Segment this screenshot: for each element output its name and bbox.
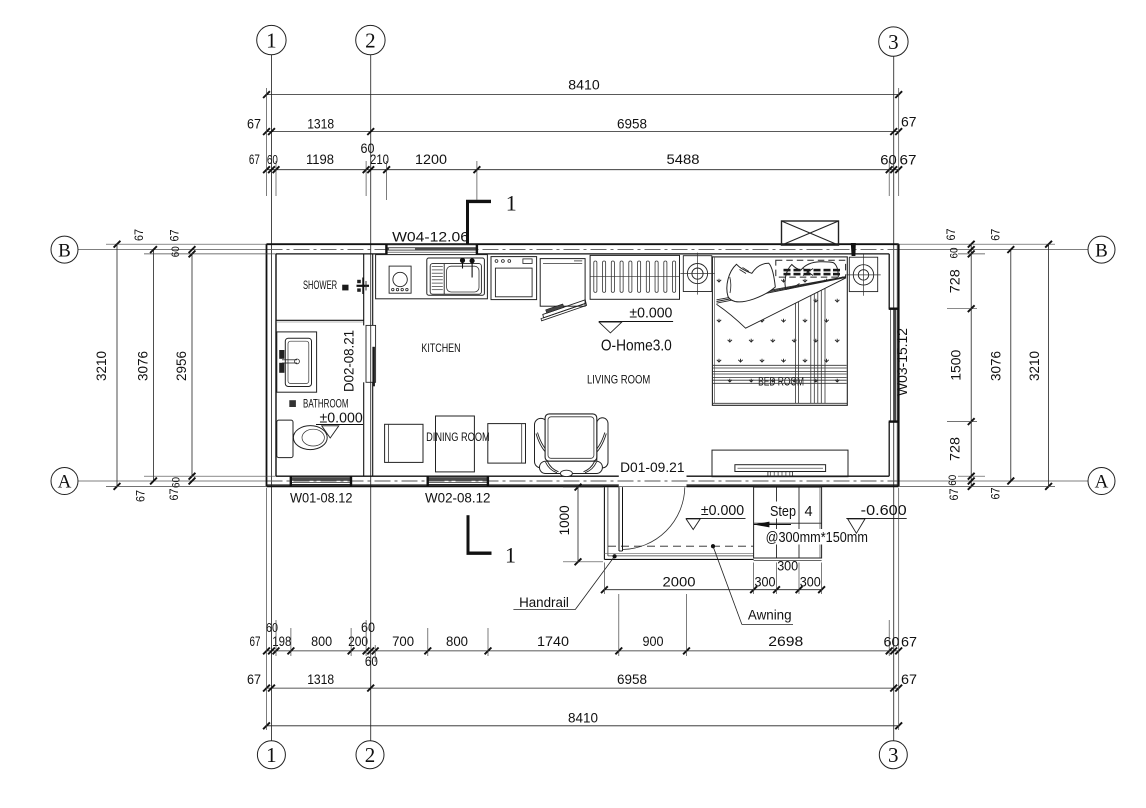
svg-text:Handrail: Handrail [519, 595, 569, 610]
svg-text:D02-08.21: D02-08.21 [342, 330, 357, 392]
svg-text:67: 67 [901, 672, 917, 687]
svg-text:67: 67 [989, 229, 1003, 241]
svg-text:3: 3 [888, 743, 899, 767]
svg-text:3076: 3076 [136, 351, 151, 381]
svg-text:3076: 3076 [989, 351, 1004, 381]
svg-text:B: B [1095, 240, 1108, 261]
svg-text:-0.600: -0.600 [861, 503, 907, 519]
svg-text:4: 4 [805, 504, 813, 520]
svg-text:2: 2 [365, 743, 376, 767]
svg-text:67: 67 [901, 634, 917, 649]
svg-text:B: B [58, 240, 71, 261]
svg-text:67: 67 [132, 229, 146, 241]
svg-text:1000: 1000 [557, 505, 572, 535]
svg-text:1: 1 [266, 28, 277, 52]
svg-text:LIVING ROOM: LIVING ROOM [587, 372, 650, 386]
svg-text:60: 60 [880, 152, 897, 167]
svg-text:198: 198 [272, 634, 291, 649]
svg-text:KITCHEN: KITCHEN [421, 341, 460, 355]
svg-text:67: 67 [247, 672, 261, 687]
svg-text:Awning: Awning [748, 608, 792, 623]
svg-text:1740: 1740 [537, 634, 569, 649]
svg-text:3: 3 [888, 30, 899, 54]
svg-text:60: 60 [947, 475, 959, 486]
svg-text:60: 60 [361, 620, 375, 635]
svg-text:210: 210 [370, 152, 389, 167]
svg-text:BED ROOM: BED ROOM [758, 375, 804, 389]
svg-text:A: A [1095, 472, 1109, 493]
svg-text:W02-08.12: W02-08.12 [425, 490, 491, 505]
svg-text:A: A [58, 472, 72, 493]
svg-text:±0.000: ±0.000 [701, 503, 744, 519]
svg-text:6958: 6958 [617, 672, 647, 687]
svg-text:W01-08.12: W01-08.12 [290, 490, 353, 505]
svg-text:60: 60 [365, 654, 378, 669]
svg-text:D01-09.21: D01-09.21 [620, 460, 684, 475]
svg-text:67: 67 [249, 152, 260, 167]
svg-text:67: 67 [989, 487, 1003, 499]
svg-text:1: 1 [266, 743, 277, 767]
svg-text:67: 67 [944, 228, 958, 240]
svg-text:6958: 6958 [617, 116, 647, 131]
svg-text:1198: 1198 [306, 152, 334, 167]
svg-text:5488: 5488 [667, 152, 700, 167]
svg-text:67: 67 [947, 488, 961, 500]
svg-text:60: 60 [949, 248, 961, 259]
svg-text:67: 67 [901, 115, 917, 130]
svg-text:8410: 8410 [568, 711, 598, 726]
svg-text:2000: 2000 [663, 574, 696, 589]
svg-text:67: 67 [134, 490, 148, 502]
svg-text:1: 1 [505, 543, 516, 568]
svg-text:@300mm*150mm: @300mm*150mm [766, 530, 868, 546]
svg-text:67: 67 [250, 634, 261, 649]
svg-text:W04-12.06: W04-12.06 [392, 229, 469, 244]
svg-text:900: 900 [643, 634, 664, 649]
svg-text:67: 67 [167, 488, 181, 500]
svg-text:60: 60 [884, 634, 900, 649]
svg-text:±0.000: ±0.000 [629, 306, 672, 322]
svg-text:300: 300 [755, 574, 776, 589]
svg-text:Step: Step [770, 504, 796, 520]
svg-text:8410: 8410 [568, 77, 599, 92]
svg-text:2: 2 [365, 28, 376, 52]
svg-text:1200: 1200 [415, 152, 447, 167]
svg-text:3210: 3210 [1027, 351, 1042, 381]
svg-text:3210: 3210 [94, 351, 109, 381]
svg-text:728: 728 [948, 437, 963, 461]
svg-text:800: 800 [446, 634, 468, 649]
svg-text:1318: 1318 [307, 116, 334, 131]
svg-text:67: 67 [168, 229, 182, 241]
svg-text:67: 67 [900, 152, 917, 167]
svg-text:2698: 2698 [768, 634, 803, 649]
svg-text:1: 1 [506, 191, 517, 216]
svg-text:300: 300 [800, 574, 821, 589]
svg-text:W03-15.12: W03-15.12 [895, 328, 910, 396]
svg-text:300: 300 [777, 559, 798, 574]
svg-text:700: 700 [392, 634, 414, 649]
svg-text:1318: 1318 [307, 672, 334, 687]
svg-text:800: 800 [311, 634, 332, 649]
svg-text:1500: 1500 [949, 350, 964, 381]
svg-text:728: 728 [948, 269, 963, 293]
svg-text:67: 67 [247, 116, 261, 131]
svg-text:O-Home3.0: O-Home3.0 [601, 337, 672, 354]
svg-text:SHOWER: SHOWER [303, 278, 337, 292]
svg-text:60: 60 [170, 246, 182, 257]
svg-text:2956: 2956 [174, 351, 189, 381]
svg-text:BATHROOM: BATHROOM [303, 397, 349, 411]
